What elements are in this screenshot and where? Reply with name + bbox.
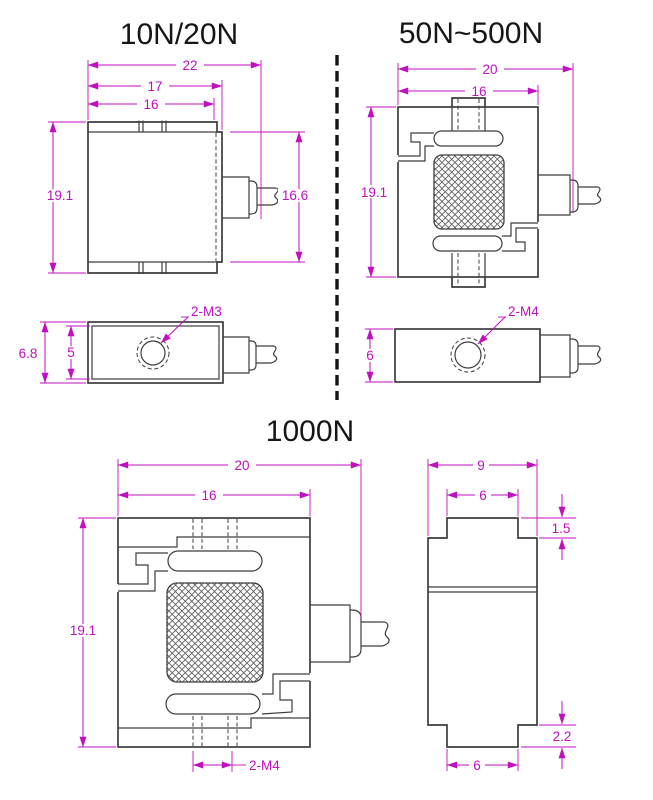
- cover-plate-lines: [428, 587, 537, 592]
- view-50n500n-front: 20 16 19.1: [357, 62, 601, 287]
- thread-leader-line: [478, 317, 505, 344]
- dim-height: 6: [366, 348, 374, 363]
- view-10n20n-front: 22 17 16 19.1 16.6: [43, 58, 312, 274]
- cable-connector: [540, 335, 601, 377]
- dim-width-body: 16: [201, 488, 216, 503]
- bottom-boss: [452, 277, 485, 287]
- dim-width-overall: 20: [234, 458, 249, 473]
- dimensions-10n20n-side: 6.8 5 2-M3: [19, 304, 222, 383]
- side-body-outline: [428, 518, 537, 747]
- view-1000n-side: 9 6 1.5 2.2 6: [428, 458, 576, 773]
- top-slot: [434, 131, 503, 146]
- dimensions-10n20n-front: 22 17 16 19.1 16.6: [43, 58, 312, 273]
- cable-break-symbol: [595, 346, 601, 364]
- thread-hole-dashed: [137, 337, 169, 369]
- dim-height-mid: 16.6: [282, 188, 308, 203]
- dim-width-boss-top: 6: [479, 488, 487, 503]
- side-body-inner: [92, 326, 219, 379]
- dim-width-body: 16: [471, 84, 486, 99]
- dim-width-body: 17: [147, 79, 162, 94]
- view-50n500n-side: 6 2-M4: [363, 304, 601, 382]
- strain-gauge-hatch-area: [167, 583, 263, 682]
- title-1000n: 1000N: [266, 415, 354, 448]
- dim-height-overall: 19.1: [361, 185, 387, 200]
- title-50n-500n: 50N~500N: [399, 17, 543, 50]
- dim-height-overall: 19.1: [47, 188, 73, 203]
- strain-gauge-hatch-area: [434, 155, 504, 229]
- side-body-outline: [88, 322, 223, 383]
- thread-hole: [455, 342, 481, 368]
- dim-width-overall: 9: [477, 458, 485, 473]
- bottom-slot: [166, 694, 260, 714]
- bottom-slot: [433, 236, 502, 251]
- thread-hole: [141, 341, 165, 365]
- dimensions-50n500n-side: 6 2-M4: [363, 304, 539, 382]
- view-10n20n-side: 6.8 5 2-M3: [19, 304, 277, 383]
- view-1000n-front: 20 16 19.1 2-M4: [66, 458, 389, 773]
- dim-height-inner: 5: [67, 345, 75, 360]
- dim-height-boss-top: 1.5: [552, 521, 571, 536]
- top-boss: [452, 98, 485, 107]
- cable-connector: [538, 175, 601, 215]
- thread-hole-dashed: [451, 338, 485, 372]
- thread-label: 2-M3: [191, 304, 222, 319]
- dim-height-boss-bottom: 2.2: [553, 729, 572, 744]
- body-outline: [88, 122, 222, 273]
- dimensions-1000n-side: 9 6 1.5 2.2 6: [428, 458, 576, 773]
- load-cell-dimension-drawing: 10N/20N 50N~500N 1000N: [0, 0, 653, 800]
- mount-hole-ticks: [139, 121, 166, 275]
- thread-label: 2-M4: [249, 758, 280, 773]
- title-10n-20n: 10N/20N: [120, 18, 238, 51]
- top-slot: [168, 551, 262, 571]
- cable-break-symbol: [595, 187, 601, 204]
- dim-width-overall: 22: [182, 58, 197, 73]
- thread-label: 2-M4: [508, 304, 539, 319]
- dim-width-boss-bottom: 6: [473, 758, 481, 773]
- dim-width-overall: 20: [482, 62, 497, 77]
- dim-height-overall: 19.1: [70, 623, 96, 638]
- thread-leader-line: [161, 317, 188, 343]
- dim-height-outer: 6.8: [19, 346, 38, 361]
- dim-width-plate: 16: [143, 97, 158, 112]
- plate-lines: [88, 132, 217, 262]
- cable-connector: [310, 605, 389, 662]
- cable-break-symbol: [272, 188, 278, 205]
- cable-break-symbol: [271, 346, 277, 363]
- side-body-outline: [395, 329, 540, 382]
- technical-drawing-sheet: 10N/20N 50N~500N 1000N: [0, 0, 653, 800]
- cable-break-symbol: [382, 622, 389, 646]
- cable-connector: [223, 337, 277, 373]
- cable-connector: [222, 177, 278, 218]
